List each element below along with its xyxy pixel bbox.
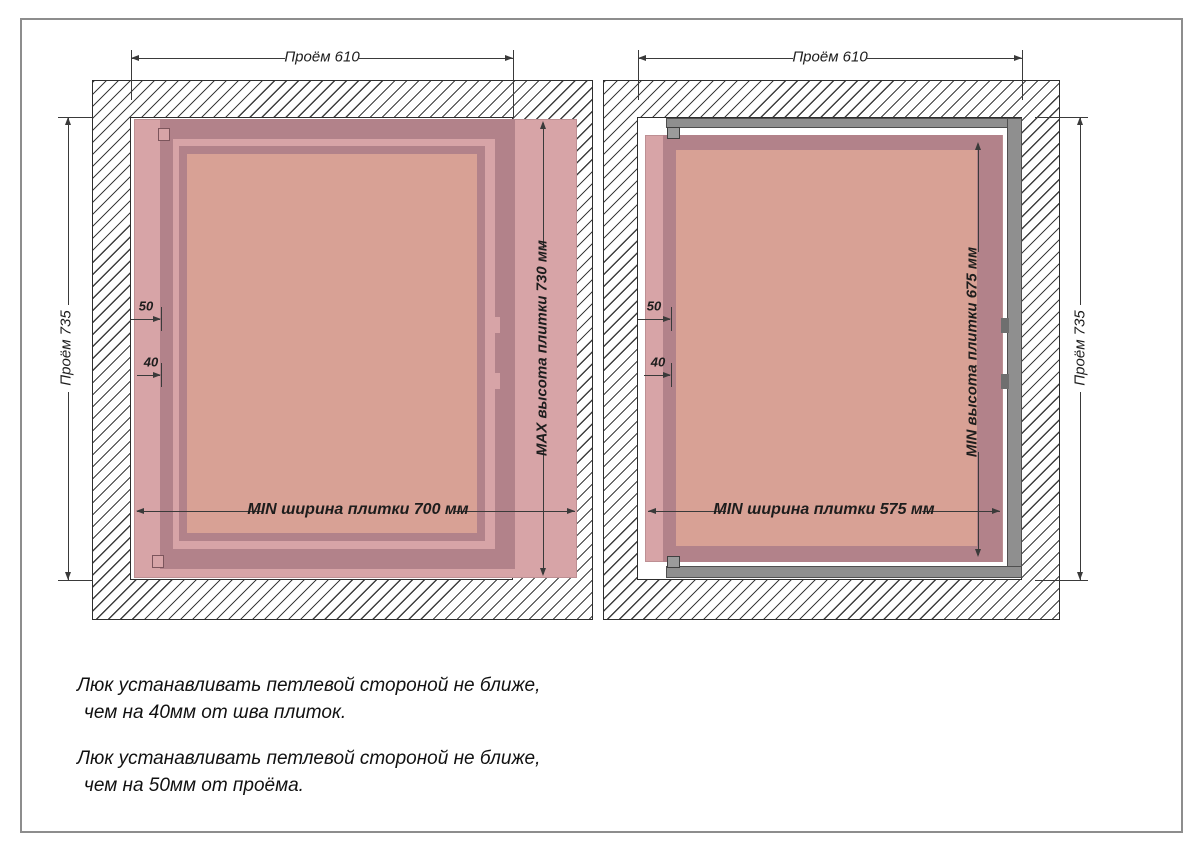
right-dim-line <box>1080 392 1081 580</box>
right-opening-height-label: Проём 735 <box>1072 310 1089 385</box>
dimension-arrow-icon <box>975 142 981 150</box>
dimension-arrow-icon <box>1077 572 1083 580</box>
left-offset40-tick <box>161 363 162 387</box>
right-offset50-label: 50 <box>647 299 661 314</box>
left-tile-width-line <box>137 511 262 512</box>
dimension-arrow-icon <box>505 55 513 61</box>
right-metal-frame-right <box>1007 118 1022 578</box>
right-tile-height-label: MIN высота плитки 675 мм <box>964 247 981 457</box>
left-ext-line <box>58 117 93 118</box>
right-door-panel <box>676 150 977 546</box>
right-metal-frame-bottom <box>666 566 1022 578</box>
note-line: чем на 50мм от проёма. <box>77 772 540 799</box>
left-offset40-label: 40 <box>144 355 158 370</box>
dimension-arrow-icon <box>131 55 139 61</box>
right-dim-line <box>867 58 1022 59</box>
right-latch-bottom-icon <box>1001 374 1009 389</box>
left-tile-width-line <box>455 511 575 512</box>
left-hinge-top-icon <box>158 128 170 141</box>
dimension-arrow-icon <box>65 117 71 125</box>
left-hinge-bottom-icon <box>152 555 164 568</box>
left-latch-top-icon <box>491 317 500 333</box>
right-latch-top-icon <box>1001 318 1009 333</box>
right-tile-width-label: MIN ширина плитки 575 мм <box>713 501 934 519</box>
right-tile-height-line <box>978 452 979 555</box>
left-opening-height-label: Проём 735 <box>58 310 75 385</box>
dimension-arrow-icon <box>136 508 144 514</box>
left-dim-line <box>68 117 69 305</box>
drawing-canvas: Проём 610 Проём 735 MAX высота плитки 73… <box>0 0 1200 849</box>
right-hinge-bottom-icon <box>667 556 680 568</box>
note-line: Люк устанавливать петлевой стороной не б… <box>77 745 540 772</box>
dimension-arrow-icon <box>153 316 161 322</box>
dimension-arrow-icon <box>992 508 1000 514</box>
dimension-arrow-icon <box>663 316 671 322</box>
left-tile-height-line <box>543 123 544 248</box>
right-opening-width-label: Проём 610 <box>792 49 867 66</box>
left-opening-width-label: Проём 610 <box>284 49 359 66</box>
left-dim-line <box>68 392 69 580</box>
right-hinge-top-icon <box>667 127 680 139</box>
right-dim-line <box>1080 117 1081 305</box>
note-hinge-seam: Люк устанавливать петлевой стороной не б… <box>77 672 540 726</box>
right-offset40-tick <box>671 363 672 387</box>
left-latch-bottom-icon <box>491 373 500 389</box>
left-offset50-tick <box>161 307 162 331</box>
left-door-panel <box>187 154 477 533</box>
right-offset40-label: 40 <box>651 355 665 370</box>
dimension-arrow-icon <box>648 508 656 514</box>
right-tile-height-line <box>978 144 979 252</box>
left-dim-line <box>359 58 513 59</box>
left-tile-height-label: MAX высота плитки 730 мм <box>534 240 551 456</box>
left-offset50-label: 50 <box>139 299 153 314</box>
dimension-arrow-icon <box>153 372 161 378</box>
dimension-arrow-icon <box>663 372 671 378</box>
left-dim-line <box>131 58 285 59</box>
left-ext-line <box>513 50 514 118</box>
right-ext-line <box>1022 50 1023 100</box>
right-dim-line <box>638 58 793 59</box>
right-offset50-tick <box>671 307 672 331</box>
dimension-arrow-icon <box>1014 55 1022 61</box>
note-line: чем на 40мм от шва плиток. <box>77 699 540 726</box>
right-ext-line <box>1035 580 1088 581</box>
dimension-arrow-icon <box>567 508 575 514</box>
dimension-arrow-icon <box>540 121 546 129</box>
left-tile-width-label: MIN ширина плитки 700 мм <box>247 501 468 519</box>
left-ext-line <box>58 580 93 581</box>
dimension-arrow-icon <box>975 549 981 557</box>
note-hinge-opening: Люк устанавливать петлевой стороной не б… <box>77 745 540 799</box>
dimension-arrow-icon <box>638 55 646 61</box>
dimension-arrow-icon <box>540 568 546 576</box>
dimension-arrow-icon <box>65 572 71 580</box>
note-line: Люк устанавливать петлевой стороной не б… <box>77 672 540 699</box>
dimension-arrow-icon <box>1077 117 1083 125</box>
right-metal-frame-top <box>666 118 1010 128</box>
